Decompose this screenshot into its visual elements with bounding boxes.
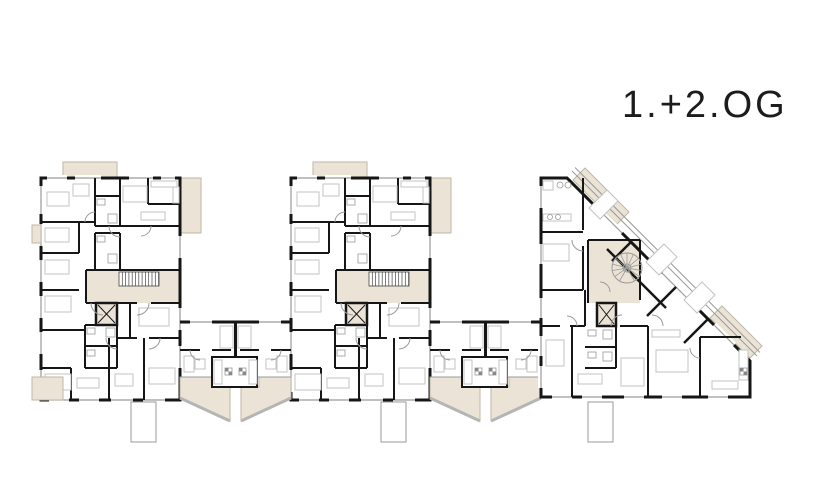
connector-1 — [180, 322, 291, 421]
floor-plan-canvas: 1.+2.OG — [0, 0, 827, 496]
block-right — [541, 168, 762, 398]
floor-plan-drawing — [0, 0, 827, 496]
block-middle — [291, 162, 451, 400]
block-left — [41, 162, 201, 400]
floor-level-label: 1.+2.OG — [622, 84, 788, 127]
connector-2 — [430, 322, 541, 421]
